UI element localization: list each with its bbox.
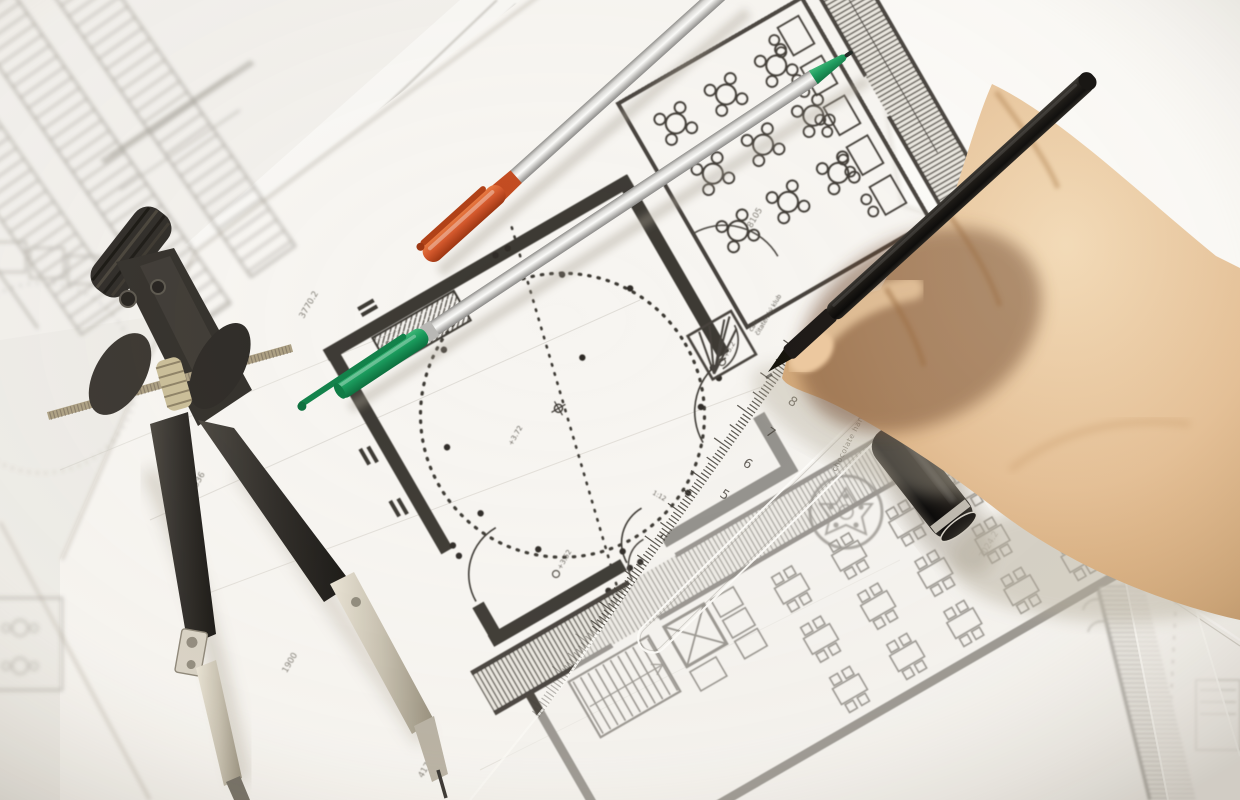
vignette-overlay [0, 0, 1240, 800]
architect-desk-photo: 3770.2 1900 536 8105 7024.2 1900 4170 +3… [0, 0, 1240, 800]
photo-canvas: 3770.2 1900 536 8105 7024.2 1900 4170 +3… [0, 0, 1240, 800]
